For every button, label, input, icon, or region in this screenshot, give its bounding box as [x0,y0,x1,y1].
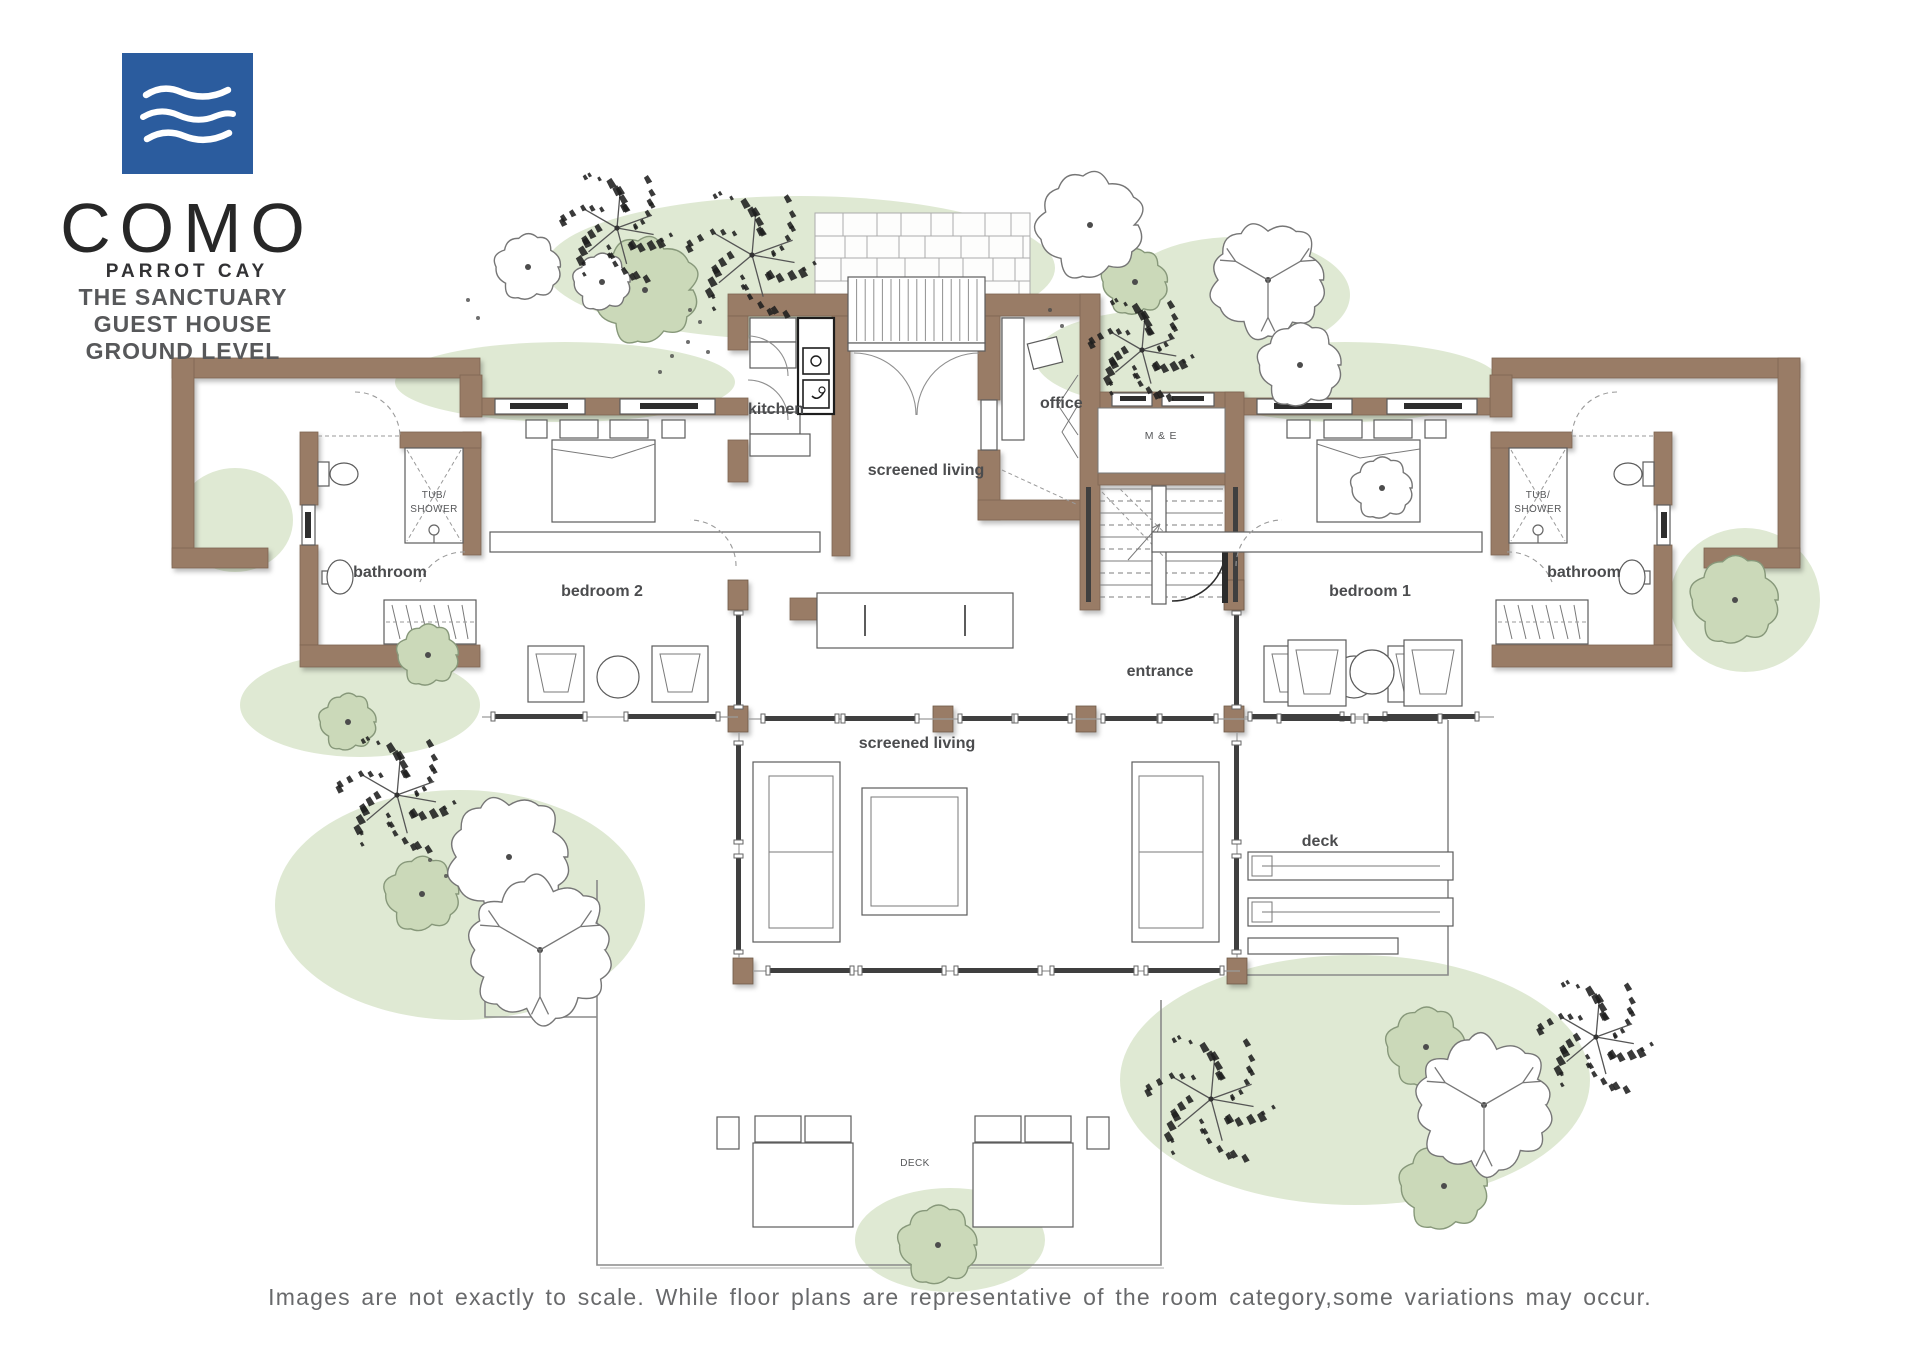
screen-panel [1234,858,1239,950]
screen-panel [1148,968,1220,973]
kitchen-sink [798,318,834,414]
screen-panel [1018,716,1068,721]
label-bedroom2: bedroom 2 [561,583,643,600]
bedroom2-furniture [490,420,820,702]
screen-panel [736,615,741,705]
label-bathroom-left: bathroom [353,564,427,581]
plan-title-line2: GUEST HOUSE [94,311,272,337]
deck-loungers [1248,852,1453,954]
screen-panel [862,968,942,973]
label-screened-living-upper: screened living [868,462,985,479]
bathroom-right-fixtures [1496,392,1654,644]
label-deck: deck [1302,833,1339,850]
entry-steps [848,277,985,415]
closet-right [1496,600,1588,644]
label-office: office [1040,395,1083,412]
screen-panel [736,858,741,950]
screen-panel [845,716,915,721]
screen-panel [1054,968,1134,973]
label-deck-lower: DECK [900,1158,929,1169]
floor-plan-page: kitchen office screened living M & E bed… [0,0,1920,1356]
label-tubshower-left-1: TUB/ [422,490,446,501]
plan-title-line1: THE SANCTUARY [79,284,288,310]
label-bedroom1: bedroom 1 [1329,583,1411,600]
label-me: M & E [1145,430,1178,442]
screen-panel [1368,716,1438,721]
lower-living-furniture [753,762,1219,942]
label-bathroom-right: bathroom [1547,564,1621,581]
screen-panel [628,714,716,719]
bathroom-left-fixtures [318,392,476,644]
label-entrance: entrance [1127,663,1194,680]
screen-panel [962,716,1012,721]
disclaimer-caption: Images are not exactly to scale. While f… [268,1284,1652,1310]
screen-panel [1234,745,1239,840]
tree-white [494,234,560,300]
screen-panel [958,968,1038,973]
console-table [817,593,1013,648]
label-tubshower-right-1: TUB/ [1526,490,1550,501]
label-kitchen: kitchen [748,401,804,418]
screen-panel [765,716,835,721]
screen-panel [1105,716,1157,721]
screen-panel [736,745,741,840]
brand-name: COMO [60,189,314,267]
como-logo: COMO PARROT CAY THE SANCTUARY GUEST HOUS… [60,53,314,364]
label-tubshower-left-2: SHOWER [410,504,457,515]
brand-subtitle: PARROT CAY [106,261,268,282]
label-tubshower-right-2: SHOWER [1514,504,1561,515]
screen-panel [770,968,850,973]
plan-title-line3: GROUND LEVEL [86,338,281,364]
label-screened-living-lower: screened living [859,735,976,752]
deck-armchairs [1288,640,1462,706]
floor-plan-canvas: kitchen office screened living M & E bed… [0,0,1920,1356]
screen-panel [495,714,583,719]
screen-panel [1281,716,1351,721]
screen-panel [1162,716,1214,721]
kitchen-fittings [748,318,834,456]
screen-panel [1234,615,1239,705]
